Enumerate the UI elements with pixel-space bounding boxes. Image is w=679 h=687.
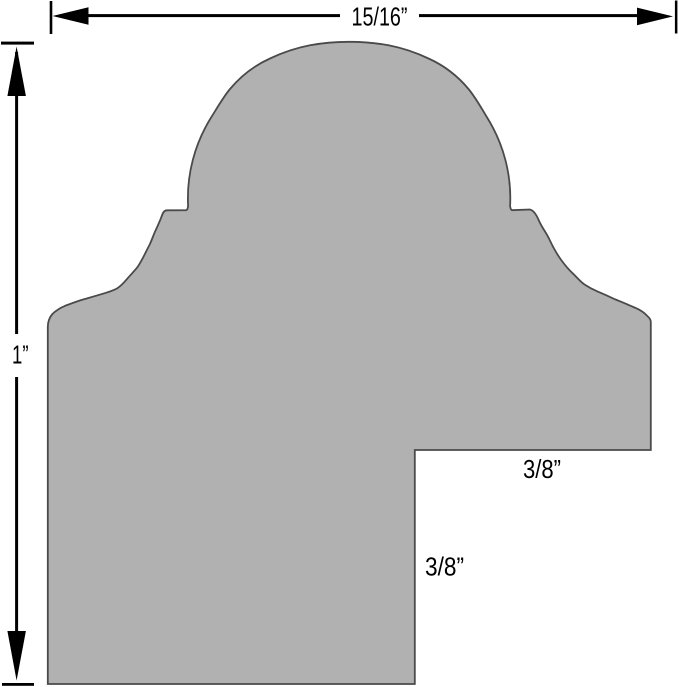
svg-text:15/16”: 15/16” bbox=[352, 1, 408, 31]
svg-text:3/8”: 3/8” bbox=[523, 454, 561, 484]
svg-text:3/8”: 3/8” bbox=[425, 552, 464, 582]
svg-text:1”: 1” bbox=[12, 340, 29, 370]
